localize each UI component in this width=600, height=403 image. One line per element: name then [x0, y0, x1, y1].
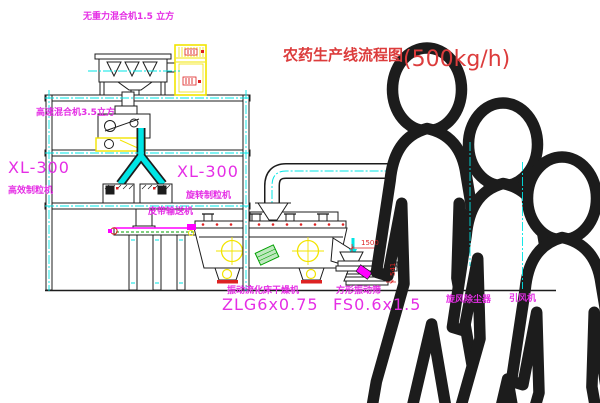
granulator-left: [103, 184, 134, 203]
label-granulator-right-name: 旋转制粒机: [186, 192, 231, 201]
label-belt-conveyor: 皮带输送机: [148, 208, 193, 217]
label-granulator-right-model: XL-300: [177, 164, 239, 180]
label-gravity-free-mixer: 无重力混合机1.5 立方: [83, 13, 174, 22]
control-cabinet-top: [175, 45, 206, 95]
belt-conveyor: [108, 209, 206, 290]
label-screen-model: FS0.6x1.5: [333, 297, 421, 313]
label-cyclone: 旋风除尘器: [446, 296, 491, 305]
gravity-free-mixer: [95, 54, 177, 95]
dimension-screen-width: 1500: [361, 240, 379, 247]
label-dryer-model: ZLG6x0.75: [222, 297, 319, 313]
diagram-title: 农药生产线流程图(500kg/h): [283, 48, 510, 71]
fluid-bed-dryer: [187, 203, 352, 284]
dimension-screen-height: 541: [390, 263, 397, 276]
title-chinese: 农药生产线流程图: [283, 46, 403, 64]
label-mid-mixer: 高速混合机3.5立方: [36, 109, 115, 118]
label-fan: 引风机: [509, 295, 536, 304]
title-capacity: (500kg/h): [403, 47, 510, 72]
label-granulator-left-name: 高效制粒机: [8, 187, 53, 196]
label-granulator-left-model: XL-300: [8, 160, 70, 176]
process-flow-diagram: 农药生产线流程图(500kg/h) 无重力混合机1.5 立方 高速混合机3.5立…: [0, 0, 600, 403]
granulator-right: [140, 184, 172, 203]
